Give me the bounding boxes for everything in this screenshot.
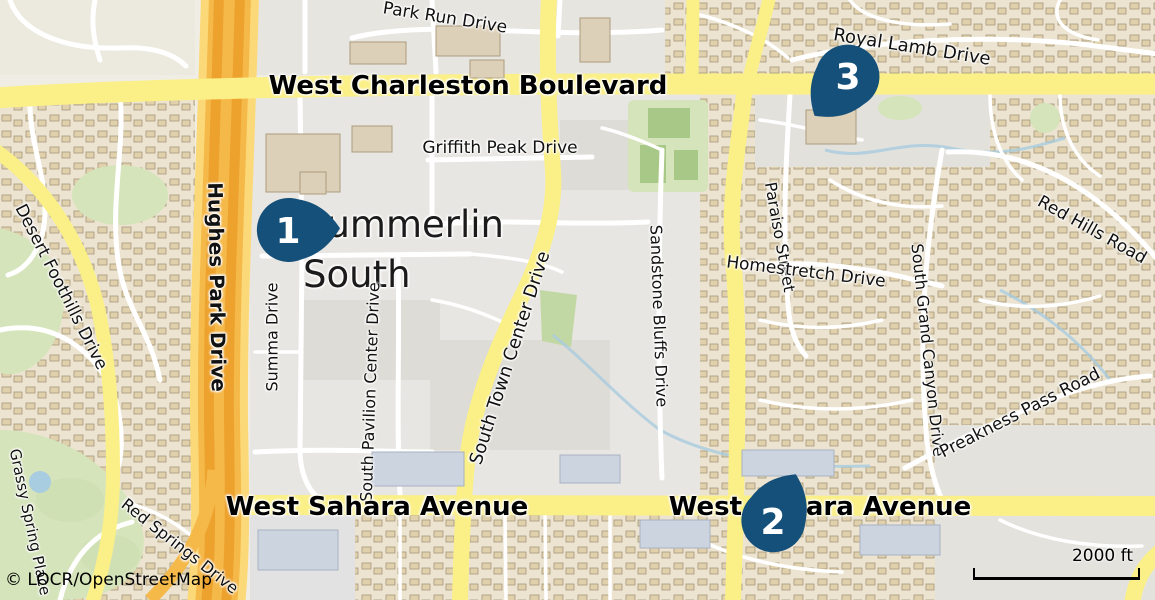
map-attribution: © LOCR/OpenStreetMap [5, 570, 212, 590]
map-canvas[interactable]: Summerlin South Park Run Drive West Char… [0, 0, 1155, 600]
map-marker-2[interactable]: 2 [731, 460, 824, 562]
marker-number-1: 1 [275, 211, 300, 252]
marker-number-3: 3 [835, 57, 860, 98]
map-marker-3[interactable]: 3 [790, 32, 892, 137]
map-marker-1[interactable]: 1 [255, 195, 341, 263]
marker-number-2: 2 [760, 502, 785, 543]
marker-layer: 123 [0, 0, 1155, 600]
scale-bar [973, 568, 1140, 580]
scale-label: 2000 ft [973, 546, 1139, 566]
